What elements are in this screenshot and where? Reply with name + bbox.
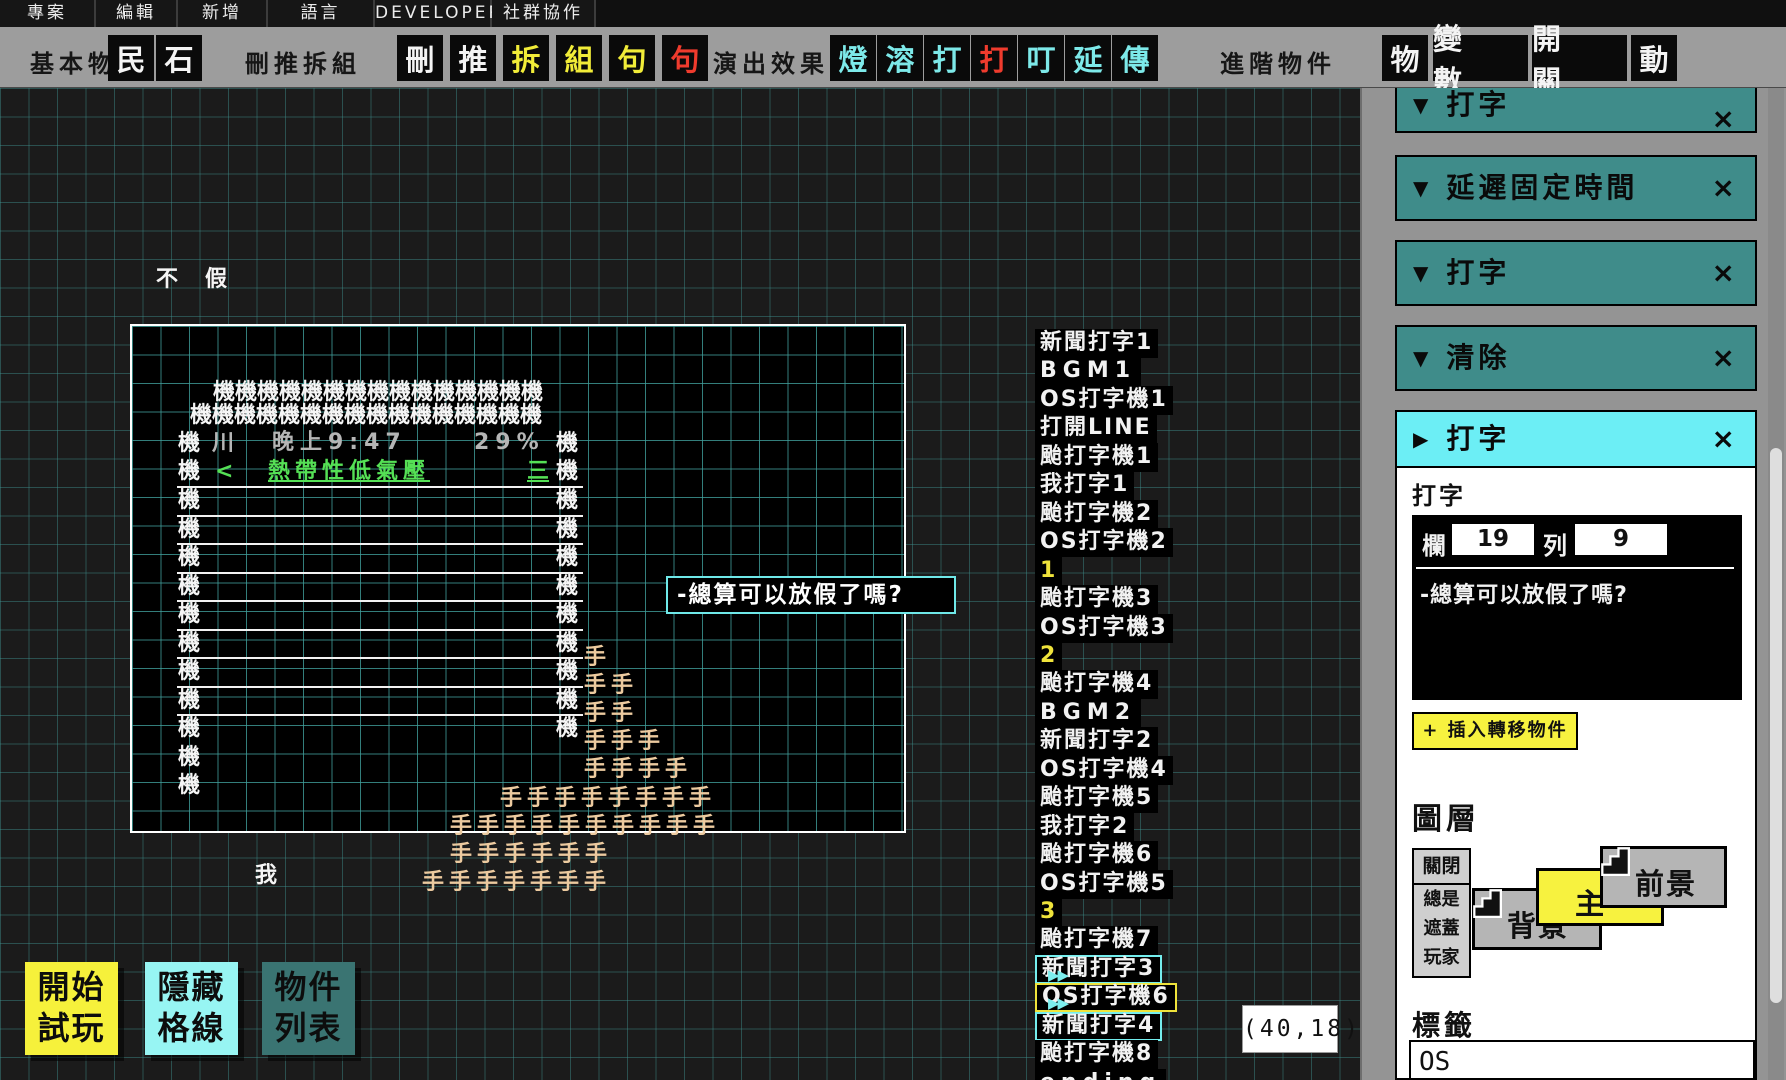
object-list-item-颱打字機4[interactable]: 颱打字機4 — [1035, 670, 1158, 699]
object-button-拆[interactable]: 拆 — [503, 35, 549, 81]
cover-line: 玩家 — [1414, 943, 1469, 972]
object-button-燈[interactable]: 燈 — [830, 35, 876, 81]
column-input[interactable]: 19 — [1452, 524, 1534, 555]
menu-item-5[interactable]: DEVELOPER — [375, 0, 492, 27]
art-text-24: 手手手手手手 — [450, 841, 612, 870]
tag-input[interactable]: OS — [1409, 1040, 1755, 1080]
menu-item-4[interactable]: 語言 — [268, 0, 375, 27]
object-button-刪[interactable]: 刪 — [397, 35, 443, 81]
object-list-item-新聞打字1[interactable]: 新聞打字1 — [1035, 329, 1158, 358]
phone-row-separator-5 — [177, 600, 583, 602]
panel-header-清除[interactable]: ▼清除× — [1395, 325, 1757, 391]
cover-line: 總是 — [1414, 885, 1469, 914]
tag-heading: 標籤 — [1412, 1004, 1476, 1044]
row-input[interactable]: 9 — [1575, 524, 1667, 555]
close-icon[interactable]: × — [1712, 412, 1739, 466]
panel-header-打字[interactable]: ▼打字× — [1395, 240, 1757, 306]
scrollbar-thumb[interactable] — [1770, 448, 1782, 1003]
insert-transfer-object-button[interactable]: + 插入轉移物件 — [1412, 712, 1578, 750]
object-button-民[interactable]: 民 — [108, 35, 154, 81]
menu-item-3[interactable]: 新增 — [178, 0, 268, 27]
typewriter-text: -總算可以放假了嗎? — [677, 582, 904, 608]
close-icon[interactable]: × — [1712, 88, 1739, 133]
object-list-item-3[interactable]: 3 — [1035, 898, 1062, 927]
object-button-組[interactable]: 組 — [556, 35, 602, 81]
column-label: 欄 — [1422, 526, 1446, 561]
panel-title: ▼打字 — [1413, 88, 1755, 133]
panel-title: ▼打字 — [1413, 256, 1510, 289]
object-button-傳[interactable]: 傳 — [1112, 35, 1158, 81]
menu-item-2[interactable]: 編輯 — [96, 0, 178, 27]
object-list-item-我打字1[interactable]: 我打字1 — [1035, 471, 1134, 500]
art-text-14: 機 — [556, 458, 578, 487]
object-button-打[interactable]: 打 — [924, 35, 970, 81]
typing-preview-text[interactable]: -總算可以放假了嗎? — [1420, 577, 1628, 609]
layer-cover-player-button[interactable]: 總是 遮蓋 玩家 — [1412, 885, 1471, 978]
typewriter-text-object[interactable]: -總算可以放假了嗎? — [666, 576, 956, 614]
art-text-11: < — [215, 458, 233, 487]
canvas[interactable]: 不假機機機機機機機機機機機機機機機機機機機機機機機機機機機機機機機機川晚上9:4… — [0, 88, 1360, 1080]
panel-header-typing-active[interactable]: ▶打字 × — [1395, 410, 1757, 468]
object-list-item-BGM2[interactable]: BGM2 — [1035, 699, 1141, 728]
art-text-21: 手手手手 — [584, 756, 692, 785]
typing-text-editor[interactable]: 欄 19 列 9 -總算可以放假了嗎? — [1412, 515, 1742, 700]
object-link-arrow-icon: ▶▶ — [1048, 994, 1067, 1012]
collapse-arrow-icon: ▼ — [1413, 176, 1432, 200]
toolbar-group-label-2: 刪推拆組 — [245, 44, 361, 79]
object-list-item-颱打字機1[interactable]: 颱打字機1 — [1035, 443, 1158, 472]
page-fold-icon — [1472, 888, 1502, 918]
art-text-22: 手手手手手手手手 — [500, 785, 716, 814]
divider — [1416, 567, 1734, 569]
art-text-5: 機 — [178, 430, 200, 459]
menu-item-1[interactable]: 專案 — [0, 0, 96, 27]
art-text-9: 機 — [556, 430, 578, 459]
menu-item-6[interactable]: 社群協作 — [492, 0, 596, 27]
object-list-item-新聞打字4[interactable]: 新聞打字4 — [1035, 1012, 1162, 1041]
typing-panel-body: 打字 欄 19 列 9 -總算可以放假了嗎? + 插入轉移物件 圖層 關閉 總是… — [1395, 468, 1757, 1080]
object-button-叮[interactable]: 叮 — [1018, 35, 1064, 81]
art-text-13: 三 — [527, 458, 549, 487]
object-list-item-1[interactable]: 1 — [1035, 557, 1062, 586]
collapse-arrow-icon: ▼ — [1413, 261, 1432, 285]
object-list-item-2[interactable]: 2 — [1035, 642, 1062, 671]
art-text-2: 假 — [205, 266, 227, 295]
panel-header-打字[interactable]: ▼打字× — [1395, 88, 1757, 133]
panel-title: ▼延遲固定時間 — [1413, 171, 1638, 204]
toolbar-group-label-4: 進階物件 — [1220, 44, 1336, 79]
art-text-4: 機機機機機機機機機機機機機機機機 — [190, 402, 542, 431]
phone-row-separator-8 — [177, 686, 583, 688]
phone-row-separator-4 — [177, 572, 583, 574]
object-list-item-颱打字機6[interactable]: 颱打字機6 — [1035, 841, 1158, 870]
art-text-25: 手手手手手手手 — [422, 869, 611, 898]
object-button-打[interactable]: 打 — [971, 35, 1017, 81]
art-text-17: 手 — [584, 644, 606, 673]
object-list-item-颱打字機2[interactable]: 颱打字機2 — [1035, 500, 1158, 529]
phone-row-separator-2 — [177, 515, 583, 517]
object-list-item-OS打字機3[interactable]: OS打字機3 — [1035, 614, 1173, 643]
art-text-26: 我 — [255, 862, 277, 891]
sidebar-scrollbar[interactable] — [1768, 88, 1784, 1080]
close-icon[interactable]: × — [1712, 327, 1739, 389]
layer-card-label: 前景 — [1635, 861, 1697, 903]
collapse-arrow-icon: ▼ — [1413, 93, 1432, 117]
art-text-20: 手手手 — [584, 728, 665, 757]
art-text-16: 機 機 機 機 機 機 機 機 機 — [556, 487, 578, 744]
object-list-item-BGM1[interactable]: BGM1 — [1035, 357, 1141, 386]
start-playtest-button[interactable]: 開始 試玩 — [25, 962, 118, 1055]
object-list-item-颱打字機8[interactable]: 颱打字機8 — [1035, 1040, 1158, 1069]
typing-section-label: 打字 — [1412, 476, 1466, 511]
object-button-物[interactable]: 物 — [1382, 35, 1428, 81]
object-button-變 數[interactable]: 變 數 — [1433, 35, 1528, 81]
object-button-句[interactable]: 句 — [609, 35, 655, 81]
close-icon[interactable]: × — [1712, 157, 1739, 219]
panel-title: ▼清除 — [1413, 341, 1510, 374]
phone-row-separator-6 — [177, 629, 583, 631]
object-list-item-颱打字機7[interactable]: 颱打字機7 — [1035, 926, 1158, 955]
object-link-arrow-icon: ▶▶ — [1048, 966, 1067, 984]
object-list-item-OS打字機2[interactable]: OS打字機2 — [1035, 528, 1173, 557]
art-text-23: 手手手手手手手手手手 — [450, 813, 720, 842]
app-root: 專案編輯新增語言DEVELOPER社群協作 基本物件民石刪推拆組刪推拆組句句演出… — [0, 0, 1786, 1080]
object-button-句[interactable]: 句 — [662, 35, 708, 81]
object-list-item-我打字2[interactable]: 我打字2 — [1035, 813, 1134, 842]
layer-close-button[interactable]: 關閉 — [1412, 848, 1471, 885]
object-list-button[interactable]: 物件 列表 — [262, 962, 355, 1055]
art-text-7: 晚上9:47 — [272, 429, 407, 458]
layers-heading: 圖層 — [1412, 794, 1480, 838]
art-text-6: 川 — [212, 430, 234, 459]
object-list-item-OS打字機4[interactable]: OS打字機4 — [1035, 756, 1173, 785]
object-list-item-OS打字機5[interactable]: OS打字機5 — [1035, 870, 1173, 899]
phone-row-separator-9 — [177, 714, 583, 716]
object-list-item-颱打字機5[interactable]: 颱打字機5 — [1035, 784, 1158, 813]
object-list-item-新聞打字2[interactable]: 新聞打字2 — [1035, 727, 1158, 756]
object-list-item-OS打字機1[interactable]: OS打字機1 — [1035, 386, 1173, 415]
art-text-8: 29% — [474, 429, 545, 458]
art-text-19: 手手 — [584, 700, 638, 729]
art-text-15: 機 機 機 機 機 機 機 機 機 機 機 — [178, 487, 200, 801]
phone-row-separator-7 — [177, 657, 583, 659]
object-button-延[interactable]: 延 — [1065, 35, 1111, 81]
toolbar: 基本物件民石刪推拆組刪推拆組句句演出效果燈溶打打叮延傳進階物件物變 數開 關動 — [0, 27, 1786, 88]
close-icon[interactable]: × — [1712, 242, 1739, 304]
object-button-溶[interactable]: 溶 — [877, 35, 923, 81]
toolbar-group-label-3: 演出效果 — [713, 44, 829, 79]
phone-row-separator-3 — [177, 543, 583, 545]
panel-title: 打字 — [1446, 422, 1510, 455]
object-button-開 關[interactable]: 開 關 — [1532, 35, 1627, 81]
object-button-動[interactable]: 動 — [1631, 35, 1677, 81]
layer-card-foreground[interactable]: 前景 — [1600, 846, 1727, 908]
object-button-推[interactable]: 推 — [450, 35, 496, 81]
page-fold-icon — [1600, 846, 1630, 876]
sidebar: ▼打字×▼延遲固定時間×▼打字×▼清除× ▶打字 × 打字 欄 19 列 9 -… — [1360, 88, 1786, 1080]
object-list-item-ending[interactable]: ending — [1035, 1069, 1166, 1080]
hide-grid-button[interactable]: 隱藏 格線 — [145, 962, 238, 1055]
art-text-18: 手手 — [584, 672, 638, 701]
collapse-arrow-icon: ▼ — [1413, 346, 1432, 370]
panel-header-延遲固定時間[interactable]: ▼延遲固定時間× — [1395, 155, 1757, 221]
art-text-10: 機 — [178, 458, 200, 487]
art-text-12: 熱帶性低氣壓 — [268, 458, 430, 487]
cover-line: 遮蓋 — [1414, 914, 1469, 943]
object-list-item-打開LINE[interactable]: 打開LINE — [1035, 414, 1157, 443]
expand-arrow-icon: ▶ — [1413, 427, 1432, 451]
row-label: 列 — [1543, 526, 1567, 561]
cursor-coordinates-tooltip: (40,18) — [1242, 1005, 1338, 1053]
object-list-item-颱打字機3[interactable]: 颱打字機3 — [1035, 585, 1158, 614]
art-text-1: 不 — [156, 266, 178, 295]
object-button-石[interactable]: 石 — [156, 35, 202, 81]
